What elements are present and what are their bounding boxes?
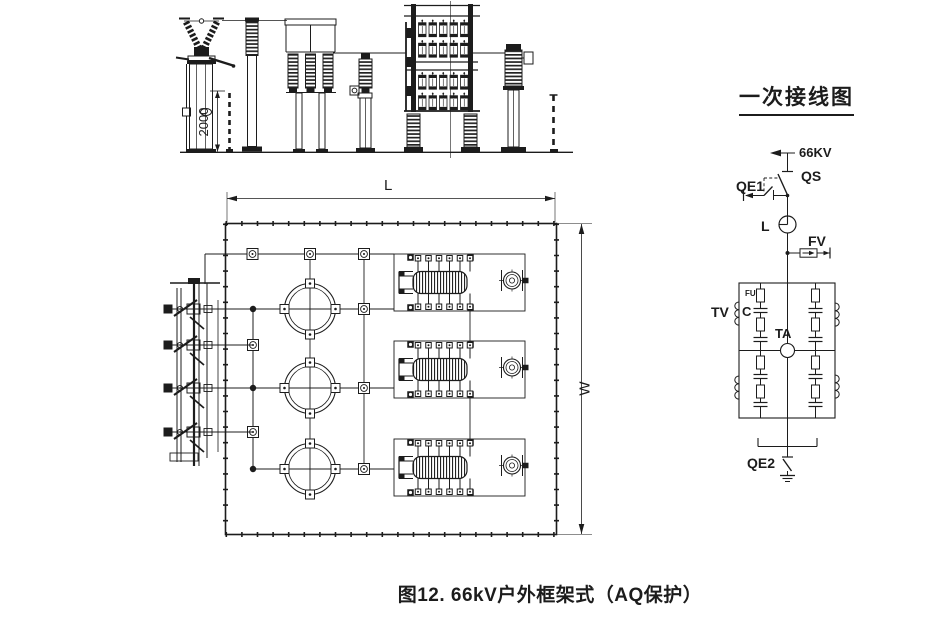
coil-left-top (735, 302, 739, 325)
width-dim-label: W (578, 374, 593, 404)
earth-switch-1-label: QE1 (736, 179, 764, 193)
coil-right-bottom (835, 375, 839, 398)
coil-right-top (835, 303, 839, 326)
capacitor-bank-row-1 (399, 254, 529, 311)
voltage-label: 66KV (799, 146, 832, 159)
surge-arrester-elevation (501, 44, 533, 152)
height-dim-label: 2000 (197, 104, 211, 140)
coil-left-bottom (735, 376, 739, 399)
height-dimension (210, 91, 233, 152)
earth-switch-2-label: QE2 (747, 456, 775, 470)
marker-post-right (550, 95, 559, 152)
voltage-transformer-label: TV (711, 305, 729, 319)
disconnector-assembly-plan (164, 278, 254, 466)
schematic-title: 一次接线图 (739, 87, 854, 116)
arrester-label: FV (808, 234, 826, 248)
reactor-symbol (779, 216, 796, 233)
earth-switch-2-symbol (780, 457, 795, 482)
current-transformer-label: TA (775, 327, 791, 340)
length-dim-label: L (384, 178, 392, 193)
incoming-line (770, 150, 795, 157)
capacitor-rack-elevation (404, 4, 480, 152)
fence-boundary (226, 224, 557, 535)
fuse-label: FU (745, 290, 756, 298)
elevation-view-drawing (160, 0, 585, 165)
reactor-label: L (761, 219, 770, 233)
plan-view-drawing (158, 178, 600, 540)
figure-66kv-outdoor-frame: 一次接线图 66KV QS QE1 L FV TV FU C TA QE2 L … (0, 0, 950, 624)
length-dimension (227, 192, 555, 222)
suspension-frame-elevation (285, 19, 336, 153)
figure-caption: 图12. 66kV户外框架式（AQ保护） (250, 586, 850, 605)
current-transformer-symbol (781, 344, 795, 358)
capacitor-bank-row-2 (399, 341, 529, 398)
arrester-branch-symbol (786, 248, 831, 259)
disconnector-label: QS (801, 169, 821, 183)
mid-insulator-elevation (350, 53, 375, 152)
capacitor-label: C (742, 305, 751, 318)
capacitor-bank-row-3 (399, 439, 529, 496)
post-insulator-elevation (242, 18, 262, 152)
